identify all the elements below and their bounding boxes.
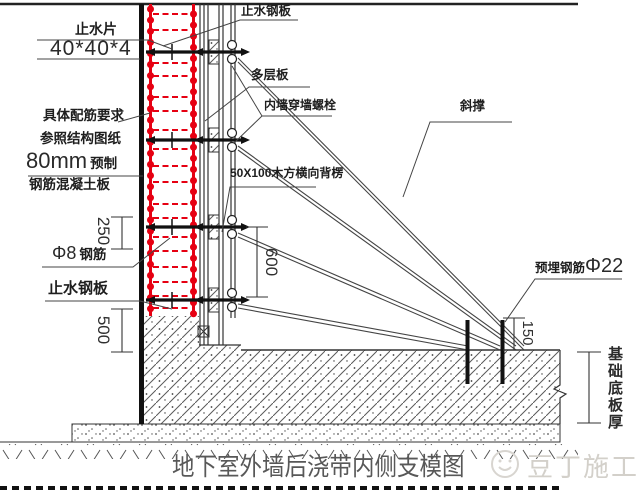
watermark-text: 豆丁施工 bbox=[527, 447, 639, 484]
label-rebar-requirement-2: 参照结构图纸 bbox=[40, 132, 121, 146]
label-waterstop-strip: 止水片 bbox=[75, 22, 117, 36]
label-waterstop-strip-size: 40*40*4 bbox=[50, 38, 132, 59]
label-phi8-size: Φ8 bbox=[52, 243, 76, 263]
label-rebar-requirement-1: 具体配筋要求 bbox=[43, 109, 124, 123]
label-timber-waler: 50X100木方横向背楞 bbox=[230, 167, 343, 179]
label-waterstop-plate-top: 止水钢板 bbox=[241, 5, 291, 18]
label-precast-panel: 80mm预制 bbox=[26, 150, 117, 172]
label-plywood: 多层板 bbox=[251, 69, 289, 82]
dimension-500: 500 bbox=[94, 313, 112, 347]
label-precast-size: 80mm bbox=[26, 148, 87, 173]
label-precast-word: 预制 bbox=[90, 156, 117, 171]
dimension-150: 150 bbox=[519, 318, 535, 348]
blinding-layer bbox=[72, 424, 560, 442]
docin-logo-icon bbox=[489, 448, 521, 485]
label-through-wall-bolt: 内墙穿墙螺栓 bbox=[264, 99, 336, 111]
dimension-250: 250 bbox=[94, 214, 112, 248]
label-embedded-rebar: 预埋钢筋Φ22 bbox=[535, 256, 623, 276]
label-slab-thickness: 基础底板厚 bbox=[604, 346, 625, 438]
dimension-600: 600 bbox=[262, 245, 280, 279]
construction-detail-drawing: 止水片 40*40*4 具体配筋要求 参照结构图纸 80mm预制 钢筋混凝土板 … bbox=[0, 0, 640, 494]
label-waterstop-plate-left: 止水钢板 bbox=[48, 281, 108, 296]
label-phi8-word: 钢筋 bbox=[79, 247, 106, 262]
label-embedded-rebar-size: Φ22 bbox=[585, 255, 623, 277]
label-diagonal-brace: 斜撑 bbox=[460, 100, 485, 113]
label-embedded-rebar-word: 预埋钢筋 bbox=[535, 261, 585, 275]
drawing-title: 地下室外墙后浇带内侧支模图 bbox=[172, 447, 465, 483]
label-rc-panel: 钢筋混凝土板 bbox=[29, 178, 110, 192]
wall-outer-face-line bbox=[139, 4, 144, 424]
